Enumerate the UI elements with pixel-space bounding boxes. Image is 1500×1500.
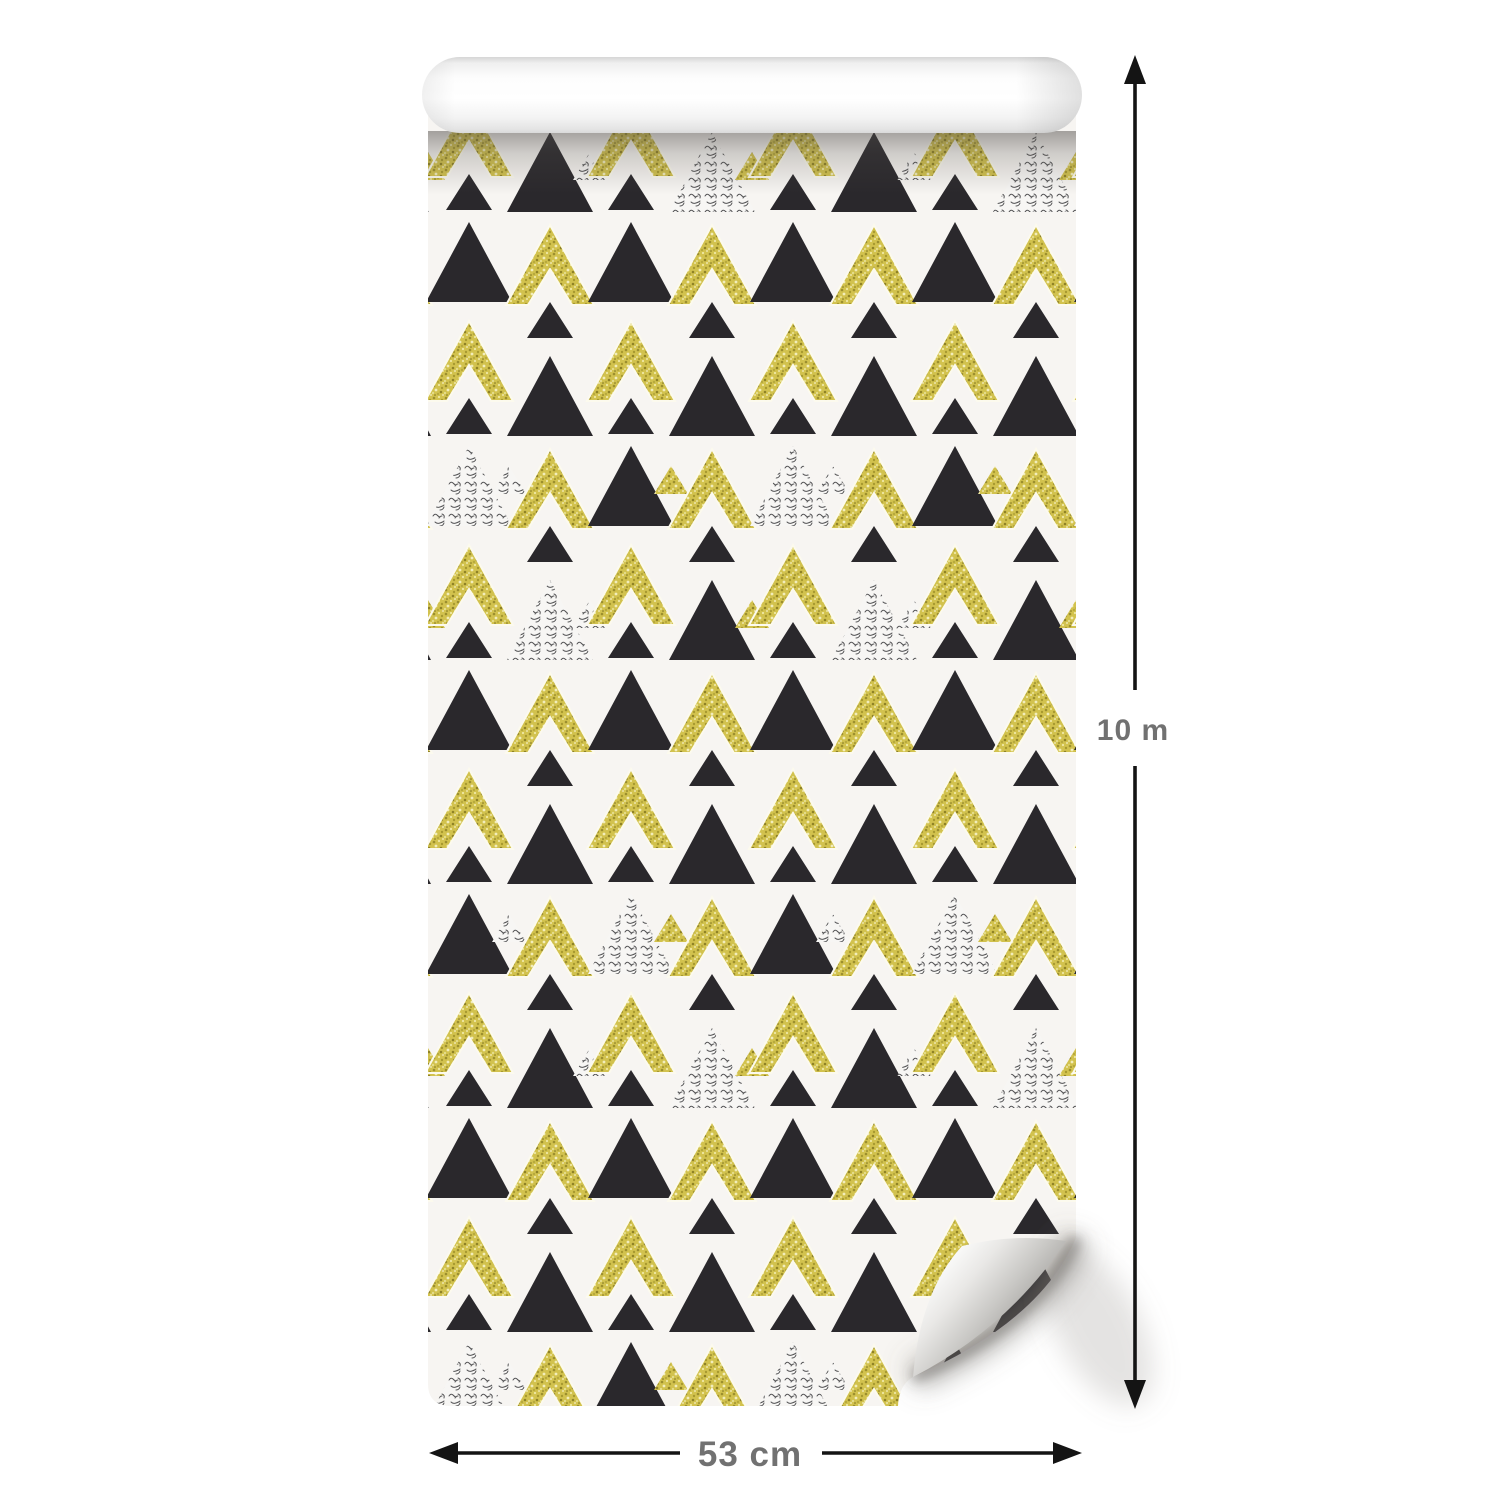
width-label: 53 cm: [698, 1435, 802, 1474]
up-arrowhead-icon: [1124, 55, 1146, 84]
roll-cylinder: [422, 57, 1082, 133]
height-label: 10 m: [1097, 714, 1169, 747]
product-image: 10 m 53 cm: [0, 0, 1500, 1500]
right-arrowhead-icon: [1053, 1442, 1082, 1464]
left-arrowhead-icon: [429, 1442, 458, 1464]
roll-contact-shadow: [428, 131, 1076, 195]
